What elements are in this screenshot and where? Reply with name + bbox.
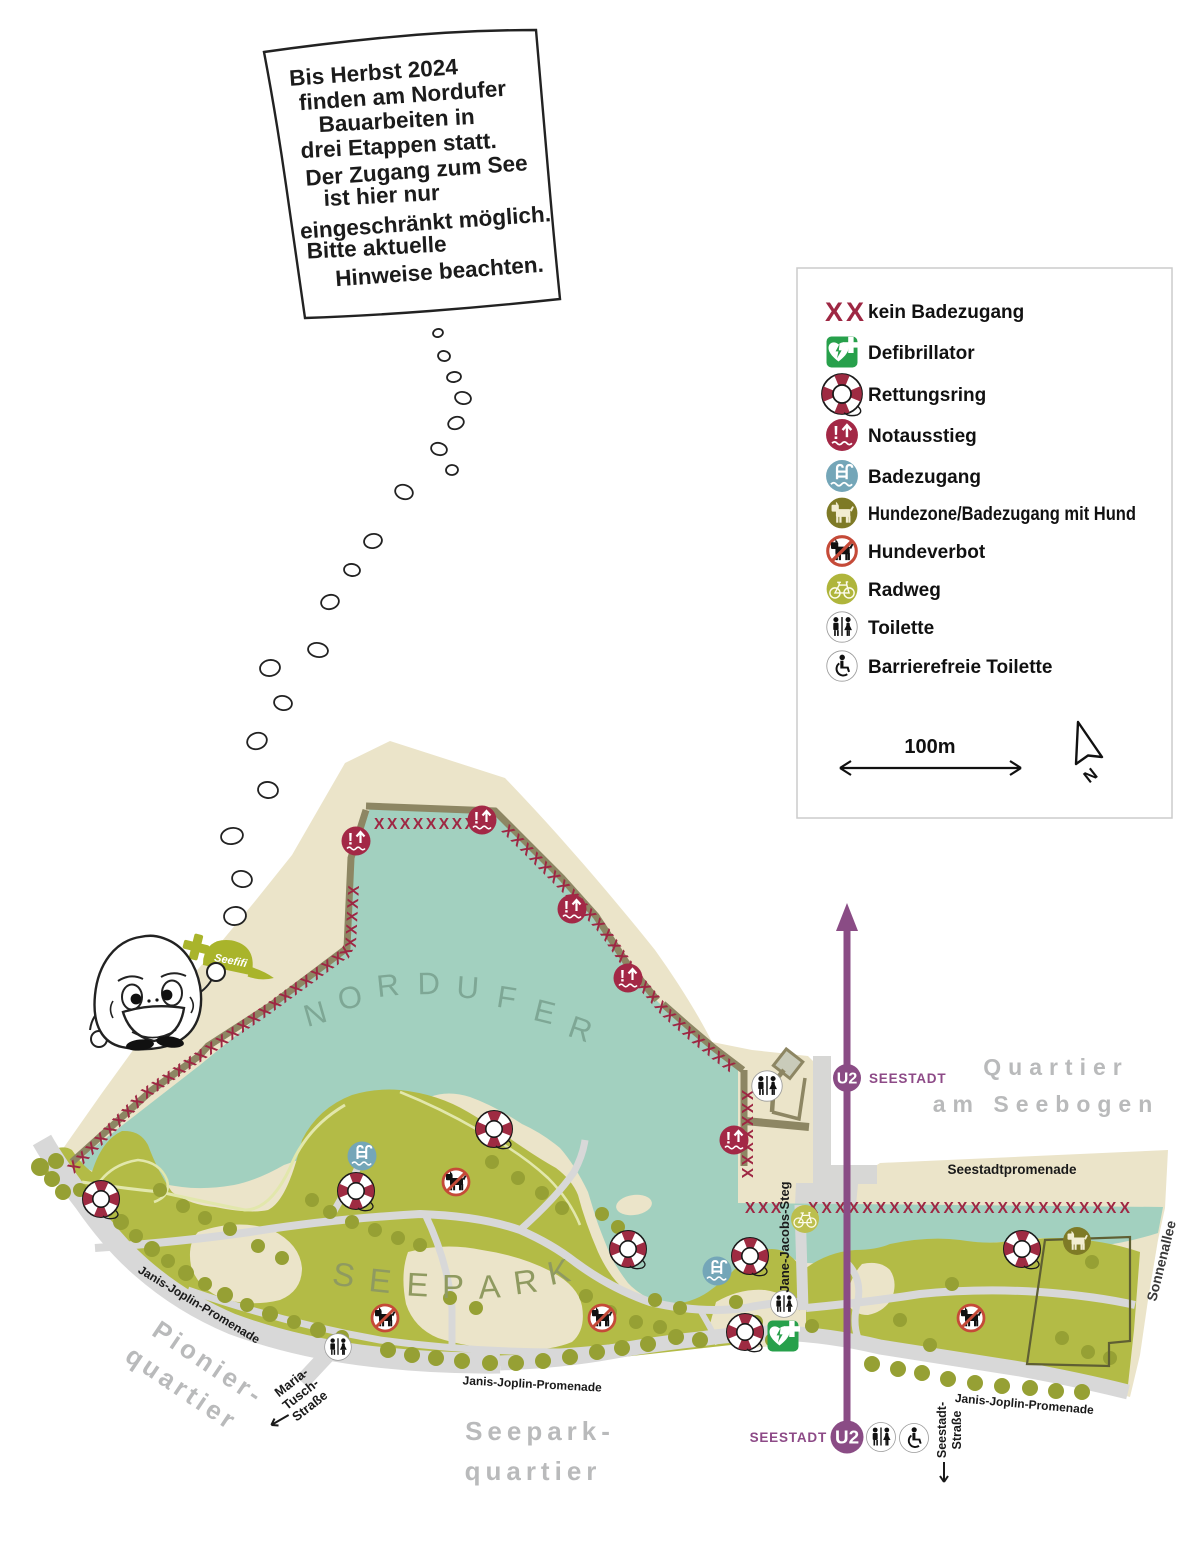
svg-text:D: D (417, 966, 440, 1001)
svg-text:Barrierefreie Toilette: Barrierefreie Toilette (868, 657, 1052, 678)
svg-text:Seepark-: Seepark- (465, 1416, 615, 1446)
svg-text:E: E (367, 1261, 393, 1300)
svg-text:Rettungsring: Rettungsring (868, 385, 986, 406)
svg-text:A: A (477, 1267, 502, 1305)
svg-text:quartier: quartier (465, 1456, 602, 1486)
svg-text:Hundeverbot: Hundeverbot (868, 542, 986, 563)
svg-text:XX: XX (825, 297, 867, 327)
svg-text:Hundezone/Badezugang mit Hund: Hundezone/Badezugang mit Hund (868, 504, 1136, 525)
svg-text:kein Badezugang: kein Badezugang (868, 302, 1024, 323)
svg-text:Straße: Straße (950, 1411, 964, 1450)
svg-text:am Seebogen: am Seebogen (933, 1091, 1160, 1117)
svg-text:Notausstieg: Notausstieg (868, 426, 977, 447)
svg-text:E: E (406, 1265, 430, 1303)
svg-text:Defibrillator: Defibrillator (868, 343, 975, 364)
svg-text:Seestadt-: Seestadt- (935, 1402, 949, 1458)
svg-text:Badezugang: Badezugang (868, 467, 981, 488)
svg-text:Quartier: Quartier (983, 1054, 1128, 1080)
svg-text:P: P (442, 1268, 464, 1305)
svg-text:Jane-Jacobs-Steg: Jane-Jacobs-Steg (777, 1181, 792, 1292)
svg-text:SEESTADT: SEESTADT (869, 1071, 946, 1086)
svg-text:U: U (455, 969, 480, 1005)
svg-text:100m: 100m (904, 736, 955, 758)
svg-text:XXXXXXXXXXXXXXXXXXXXXXXX: XXXXXXXXXXXXXXXXXXXXXXXX (808, 1200, 1133, 1217)
svg-text:Radweg: Radweg (868, 580, 941, 601)
svg-text:R: R (511, 1262, 540, 1302)
svg-text:R: R (375, 967, 401, 1004)
svg-text:Seestadtpromenade: Seestadtpromenade (947, 1162, 1077, 1177)
svg-text:Toilette: Toilette (868, 618, 934, 639)
svg-text:SEESTADT: SEESTADT (750, 1430, 827, 1445)
